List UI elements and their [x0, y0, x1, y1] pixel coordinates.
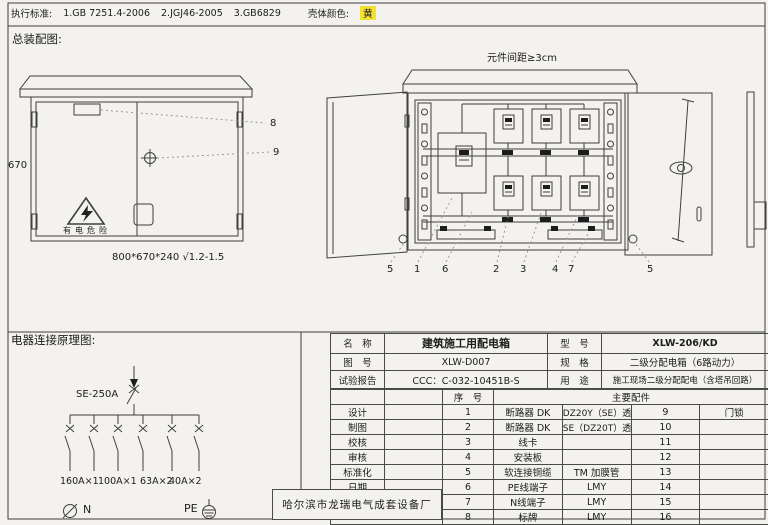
info-key: 规 格 [548, 353, 602, 371]
product-name: 建筑施工用配电箱 [385, 334, 548, 354]
schematic-section-title: 电器连接原理图: [11, 334, 95, 347]
model-number: XLW-206/KD [602, 334, 768, 354]
seq-header: 序 号 [443, 390, 494, 405]
part-spec: LMY [562, 495, 631, 510]
neutral-label: N [83, 504, 91, 516]
danger-label: 有电危险 [63, 227, 111, 236]
part-spec: SE（DZ20T）透明系列 [562, 420, 631, 435]
callout-leaders-open [391, 198, 649, 262]
branch-breakers-bottom [494, 176, 599, 210]
part-no2: 14 [631, 480, 700, 495]
part-spec [562, 450, 631, 465]
manufacturer-name: 哈尔滨市龙瑞电气成套设备厂 [272, 489, 442, 520]
callout-leaders-front [101, 110, 270, 158]
spacing-note: 元件间距≥3cm [487, 53, 557, 64]
door-lock-mechanism [670, 162, 692, 174]
part-name: 线卡 [494, 435, 563, 450]
test-report-number: CCC：C-032-10451B-S [385, 371, 548, 389]
part-name: 断路器 DK [494, 405, 563, 420]
callout-2: 2 [493, 264, 499, 275]
pe-label: PE [184, 503, 198, 515]
part-name2 [700, 420, 768, 435]
part-name: N线端子 [494, 495, 563, 510]
part-no: 1 [443, 405, 494, 420]
nameplate [74, 104, 100, 115]
height-dimension: 670 [8, 160, 27, 171]
part-name: 标牌 [494, 510, 563, 525]
sign-label: 标准化 [331, 465, 385, 480]
part-no: 5 [443, 465, 494, 480]
part-no2: 15 [631, 495, 700, 510]
left-din-strip [418, 103, 431, 240]
callout-9: 9 [273, 147, 279, 158]
part-spec: TM 加膜管 [562, 465, 631, 480]
part-no2: 10 [631, 420, 700, 435]
part-no: 6 [443, 480, 494, 495]
callout-4: 4 [552, 264, 558, 275]
info-key: 用 途 [548, 371, 602, 389]
info-key: 试验报告 [331, 371, 385, 389]
callout-3: 3 [520, 264, 526, 275]
part-name2 [700, 465, 768, 480]
engineering-drawing-sheet: { "header": { "exec_label": "执行标准:", "st… [0, 0, 768, 521]
part-name2 [700, 450, 768, 465]
main-breaker-label: SE-250A [76, 389, 118, 400]
assembly-section-title: 总装配图: [12, 33, 62, 46]
part-no: 2 [443, 420, 494, 435]
sign-label: 审核 [331, 450, 385, 465]
branch-breakers-top [494, 109, 599, 143]
part-name: 软连接铜缆 [494, 465, 563, 480]
part-spec: DZ20Y（SE）透明系列 [562, 405, 631, 420]
ground-wire-hook-left [399, 235, 407, 243]
parts-header: 主要配件 [494, 390, 768, 405]
earth-icon [203, 499, 216, 519]
part-no2: 16 [631, 510, 700, 525]
part-name2 [700, 435, 768, 450]
drawing-number: XLW-D007 [385, 353, 548, 371]
size-note: 800*670*240 √1.2-1.5 [112, 252, 224, 263]
cabinet-open-view [327, 70, 766, 262]
part-spec: LMY [562, 510, 631, 525]
cabinet-front-view [20, 76, 270, 241]
branch-breaker-symbols [65, 415, 203, 471]
part-name2: 门锁 [700, 405, 768, 420]
branch-label-63: 63A×2 [140, 477, 173, 487]
title-block-info-table: 名 称 建筑施工用配电箱 型 号 XLW-206/KD 图 号 XLW-D007… [330, 333, 768, 389]
branch-label-160: 160A×1 [60, 477, 99, 487]
sign-label: 设计 [331, 405, 385, 420]
part-name2 [700, 495, 768, 510]
part-spec [562, 435, 631, 450]
terminal-strips [437, 226, 602, 239]
callout-5b: 5 [647, 264, 653, 275]
part-no: 7 [443, 495, 494, 510]
part-name: 安装板 [494, 450, 563, 465]
part-no2: 11 [631, 435, 700, 450]
callout-7: 7 [568, 264, 574, 275]
part-spec: LMY [562, 480, 631, 495]
branch-label-100: 100A×1 [98, 477, 137, 487]
right-din-strip [604, 103, 617, 240]
callout-8: 8 [270, 118, 276, 129]
right-door-open [625, 93, 712, 255]
part-name: PE线端子 [494, 480, 563, 495]
part-no: 4 [443, 450, 494, 465]
part-no: 8 [443, 510, 494, 525]
info-key: 名 称 [331, 334, 385, 354]
info-key: 型 号 [548, 334, 602, 354]
usage-value: 施工现场二级分配配电（含塔吊回路） [602, 371, 768, 389]
left-door-open [327, 92, 409, 258]
main-breaker [438, 133, 486, 193]
part-name2 [700, 480, 768, 495]
neutral-icon [63, 504, 77, 518]
part-no2: 9 [631, 405, 700, 420]
part-no2: 12 [631, 450, 700, 465]
branch-label-40: 40A×2 [169, 477, 202, 487]
sign-label: 制图 [331, 420, 385, 435]
part-no: 3 [443, 435, 494, 450]
danger-triangle-icon [68, 198, 104, 224]
crosshair-icon [141, 149, 159, 167]
ground-wire-hook-right [629, 235, 637, 243]
spec-value: 二级分配电箱（6路动力） [602, 353, 768, 371]
callout-1: 1 [414, 264, 420, 275]
info-key: 图 号 [331, 353, 385, 371]
part-name: 断路器 DK [494, 420, 563, 435]
callout-5a: 5 [387, 264, 393, 275]
callout-6: 6 [442, 264, 448, 275]
sign-label: 校核 [331, 435, 385, 450]
part-name2 [700, 510, 768, 525]
side-panel-view [747, 92, 766, 247]
part-no2: 13 [631, 465, 700, 480]
